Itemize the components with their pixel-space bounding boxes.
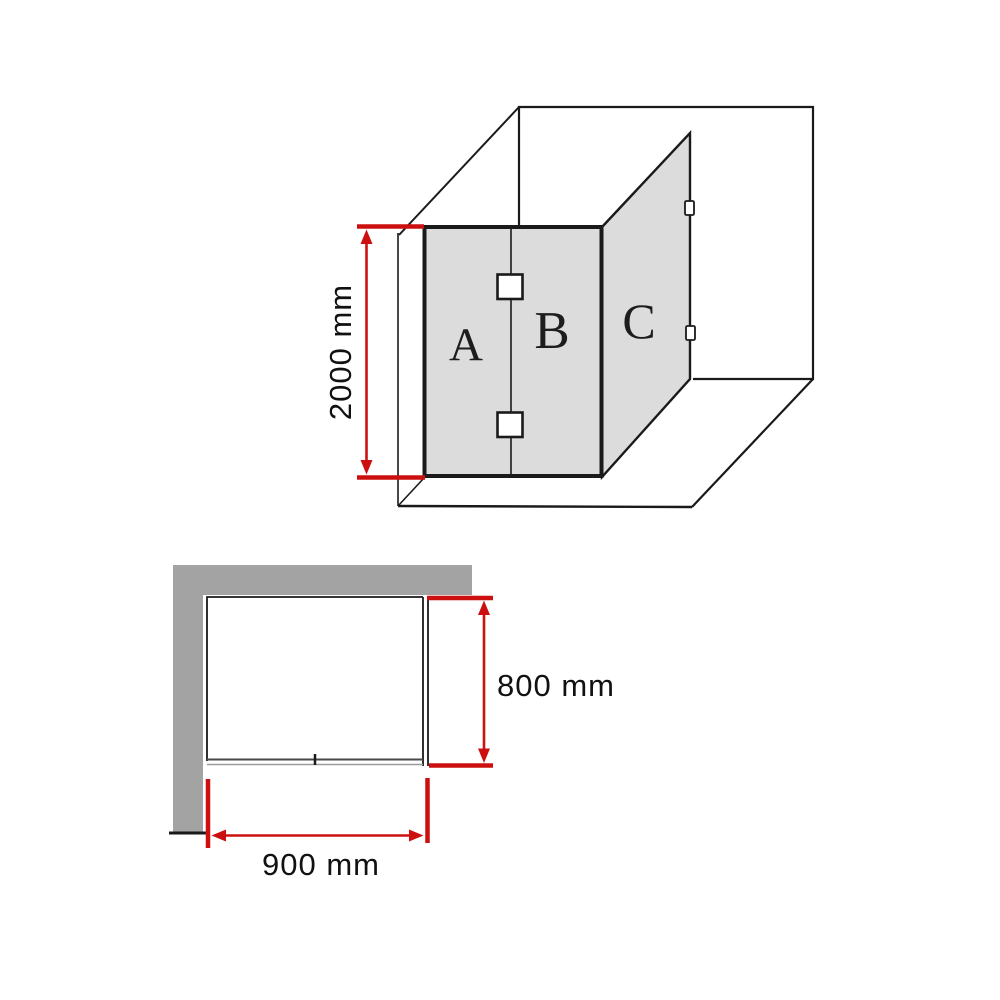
floor-front-edge xyxy=(398,506,692,507)
panel-a-label: A xyxy=(449,318,483,372)
hinge-top-icon xyxy=(498,275,523,300)
width-dimension-arrowhead-right xyxy=(409,830,424,842)
height-dimension-arrowhead-down xyxy=(361,460,373,475)
footprint-outline xyxy=(207,597,423,761)
height-dimension-arrowhead-up xyxy=(361,230,373,245)
isometric-view xyxy=(357,107,813,507)
width-dimension xyxy=(208,778,428,848)
width-dimension-arrowhead-left xyxy=(212,830,227,842)
wall-bracket-top-icon xyxy=(685,201,694,215)
depth-dimension-arrowhead-down xyxy=(478,749,490,764)
wall-bracket-bottom-icon xyxy=(686,326,695,340)
diagram-canvas: A B C 2000 mm 800 mm 900 mm xyxy=(0,0,1000,1000)
left-wall-top-edge xyxy=(399,107,519,235)
panel-b-label: B xyxy=(534,301,569,361)
floor-right-edge xyxy=(692,379,813,507)
hinge-bottom-icon xyxy=(498,413,523,438)
diagram-linework xyxy=(0,0,1000,1000)
floor-left-corner-edge xyxy=(398,478,424,506)
depth-dimension-arrowhead-up xyxy=(478,601,490,616)
plan-view xyxy=(169,565,493,848)
height-dimension xyxy=(357,227,425,478)
panel-c-label: C xyxy=(622,292,655,350)
depth-dimension-label: 800 mm xyxy=(497,668,615,704)
height-dimension-label: 2000 mm xyxy=(323,284,359,420)
width-dimension-label: 900 mm xyxy=(262,847,380,883)
depth-dimension xyxy=(427,598,493,766)
